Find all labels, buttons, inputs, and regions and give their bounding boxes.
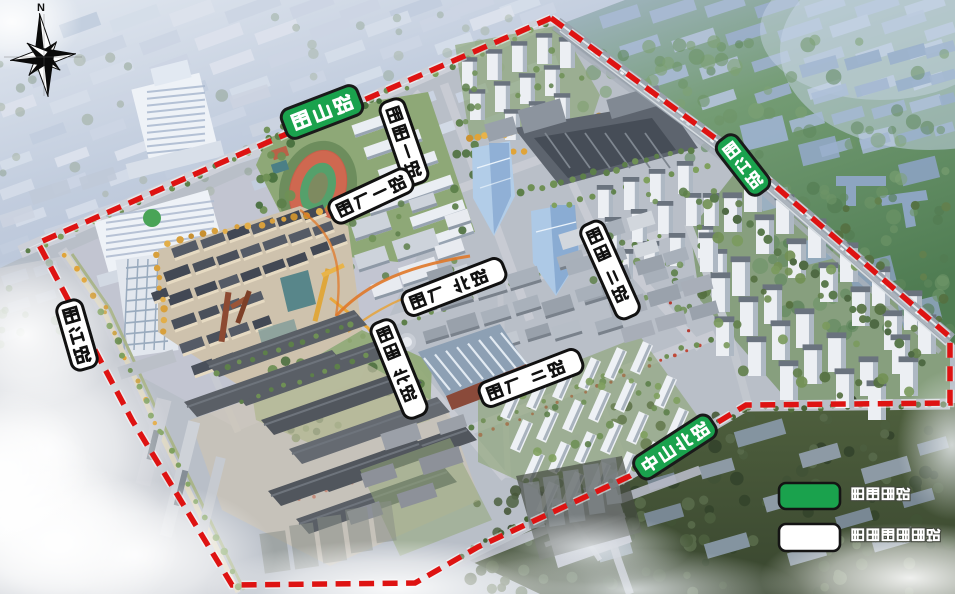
svg-text:N: N [37,2,45,14]
